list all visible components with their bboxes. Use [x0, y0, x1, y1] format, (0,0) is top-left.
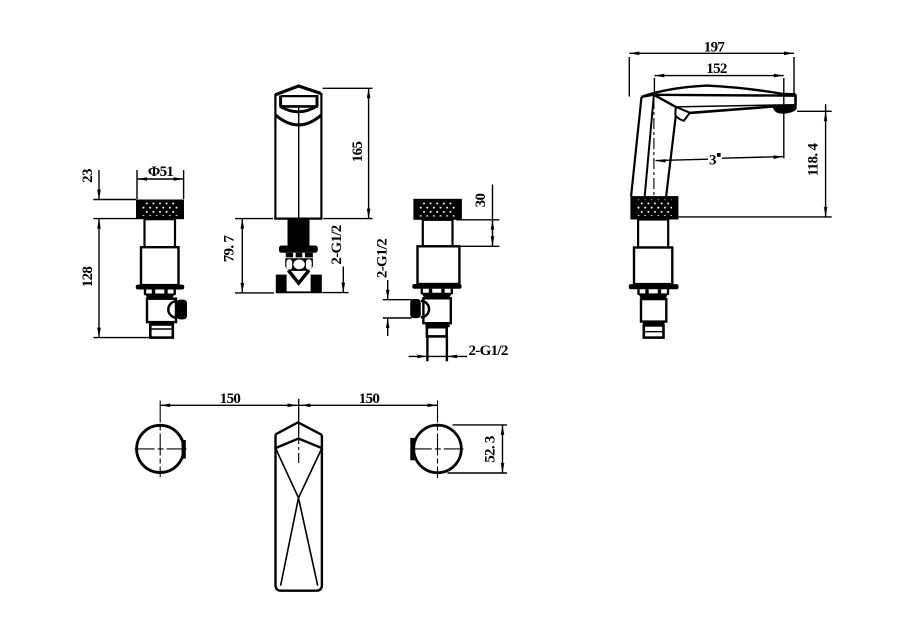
svg-text:165: 165 [350, 142, 366, 163]
svg-text:150: 150 [359, 391, 380, 407]
svg-text:197: 197 [704, 40, 726, 56]
svg-text:2-G1/2: 2-G1/2 [469, 343, 508, 359]
svg-text:79. 7: 79. 7 [222, 235, 238, 263]
svg-text:30: 30 [473, 194, 489, 208]
svg-text:152: 152 [706, 61, 727, 77]
svg-text:23: 23 [80, 169, 96, 183]
svg-text:2-G1/2: 2-G1/2 [375, 239, 391, 278]
svg-text:128: 128 [80, 267, 96, 288]
svg-text:2-G1/2: 2-G1/2 [329, 225, 345, 264]
svg-text:52. 3: 52. 3 [483, 436, 499, 463]
svg-text:118. 4: 118. 4 [806, 143, 822, 177]
svg-text:Φ51: Φ51 [148, 164, 174, 180]
svg-text:3: 3 [709, 153, 716, 169]
svg-text:150: 150 [220, 391, 241, 407]
